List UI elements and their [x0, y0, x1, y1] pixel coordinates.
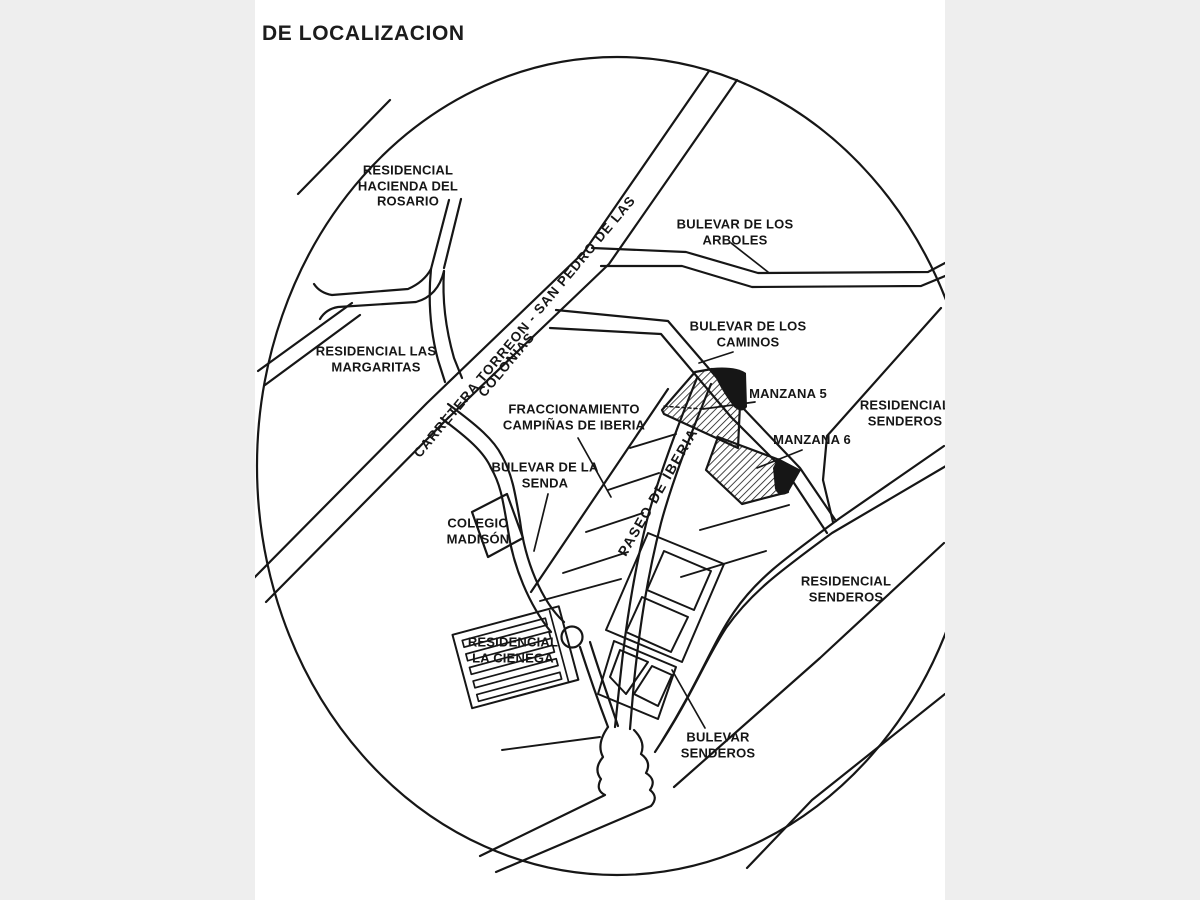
bulevar-senderos-leader-line [672, 670, 705, 728]
subdivision-blocks [598, 533, 724, 719]
label-manzana6: MANZANA 6 [773, 432, 851, 448]
label-colegio-madison: COLEGIO MADISÓN [447, 515, 510, 546]
label-bulevar-caminos: BULEVAR DE LOS CAMINOS [690, 318, 807, 349]
label-residencial-margaritas: RESIDENCIAL LAS MARGARITAS [316, 343, 437, 374]
letterbox-left [0, 0, 255, 900]
label-bulevar-senda: BULEVAR DE LA SENDA [491, 459, 598, 490]
page-title: DE LOCALIZACION [262, 22, 465, 46]
map-canvas: DE LOCALIZACION RESIDENCIAL HACIENDA DEL… [255, 0, 945, 900]
knob-junction [480, 727, 655, 872]
manzana5-block [662, 368, 755, 448]
label-residencial-senderos-se: RESIDENCIAL SENDEROS [801, 573, 891, 604]
caminos-leader-line [699, 352, 733, 363]
label-fraccionamiento: FRACCIONAMIENTO CAMPIÑAS DE IBERIA [503, 401, 645, 432]
letterbox-right [945, 0, 1200, 900]
label-bulevar-senderos: BULEVAR SENDEROS [681, 729, 756, 760]
label-residencial-hacienda: RESIDENCIAL HACIENDA DEL ROSARIO [358, 163, 458, 210]
label-manzana5: MANZANA 5 [749, 386, 827, 402]
map-drawing [255, 0, 945, 900]
label-bulevar-arboles: BULEVAR DE LOS ARBOLES [677, 216, 794, 247]
bulevar-arboles-road [592, 243, 945, 287]
location-map-page: DE LOCALIZACION RESIDENCIAL HACIENDA DEL… [0, 0, 1200, 900]
senda-leader-line [534, 494, 548, 551]
label-residencial-senderos-ne: RESIDENCIAL SENDEROS [860, 397, 945, 428]
label-residencial-cienega: RESIDENCIAL LA CIENEGA [468, 634, 558, 665]
